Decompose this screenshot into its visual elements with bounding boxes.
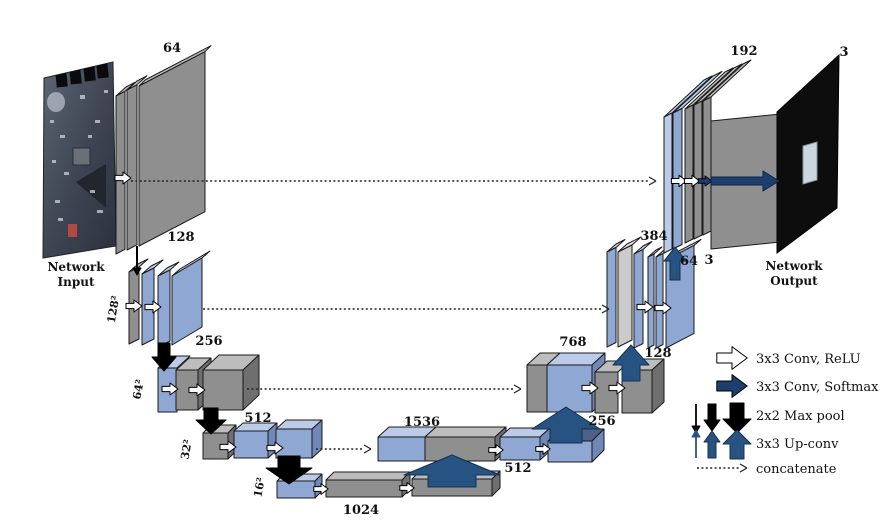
dec384-4-front (656, 254, 663, 349)
label-1536: 1536 (404, 415, 440, 430)
dec768-2-front (595, 372, 618, 413)
label-384: 384 (640, 229, 667, 244)
legend-icons (692, 347, 751, 472)
legend-concatenate: concatenate (756, 462, 837, 477)
concat-head-a1 (649, 177, 656, 181)
legend-conv-relu: 3x3 Conv, ReLU (756, 352, 861, 367)
legend-maxpool: 2x2 Max pool (756, 409, 845, 424)
dec192-4-front (703, 97, 711, 235)
enc128-face-front (172, 258, 202, 345)
legend-upconv-med-icon (704, 431, 720, 458)
dec512-box-front (500, 437, 540, 460)
label-out-3: 3 (839, 45, 848, 60)
label-enc-256: 256 (195, 334, 222, 349)
legend-maxpool-med-icon (704, 404, 720, 431)
legend-conv-softmax-arrow-icon (717, 375, 747, 398)
legend-upconv-big-icon (723, 430, 751, 459)
label-up-256: 256 (588, 414, 615, 429)
bott-1024a-front (326, 480, 402, 497)
dec384-0-front (607, 248, 616, 348)
dec384-2-front (634, 250, 643, 349)
bott-1024a-top (326, 472, 410, 480)
legend: 3x3 Conv, ReLU 3x3 Conv, Softmax 2x2 Max… (756, 352, 879, 477)
enc64-2-front (127, 85, 137, 250)
enc512-2-front (276, 429, 312, 458)
input-caption-line2: Input (58, 275, 95, 289)
label-192: 192 (730, 44, 757, 59)
legend-concat-head-a (740, 464, 747, 468)
network-output-image (777, 55, 839, 253)
label-size-128sq: 128² (105, 294, 123, 324)
concat-head-b4 (364, 449, 371, 453)
unet-architecture-diagram: 64 128 256 512 1024 1536 512 256 768 128… (0, 0, 888, 529)
dec768-0-front (527, 365, 547, 412)
network-input-image (43, 62, 116, 258)
dec384-3-front (648, 254, 654, 348)
conv-relu-arrow-2 (126, 300, 142, 312)
label-enc-128: 128 (167, 230, 194, 245)
input-caption-line1: Network (47, 260, 105, 274)
enc512-1-front (234, 431, 268, 458)
enc64-face-front (139, 52, 205, 246)
label-size-32sq: 32² (178, 438, 194, 460)
legend-concat-head-b (740, 468, 747, 472)
legend-conv-softmax: 3x3 Conv, Softmax (756, 380, 879, 395)
label-1024: 1024 (343, 503, 379, 518)
label-768: 768 (559, 335, 586, 350)
feature-map-layers (116, 46, 783, 498)
concat-head-b3 (514, 389, 521, 393)
dec192-3-front (694, 101, 702, 239)
label-up-128: 128 (644, 346, 671, 361)
label-dec-64: 64 (680, 254, 698, 269)
label-size-16sq: 16² (251, 476, 267, 498)
dec1536-blue-front (378, 437, 425, 461)
legend-conv-relu-arrow-icon (717, 347, 747, 370)
legend-maxpool-big-icon (723, 403, 751, 433)
bott-0-front (277, 481, 315, 498)
label-enc-512: 512 (244, 411, 271, 426)
concat-head-b1 (649, 181, 656, 185)
output-caption-line1: Network (765, 259, 823, 273)
open-box-front (548, 441, 592, 462)
dec384-1-front (618, 245, 632, 347)
dec1536-gray-front (425, 437, 495, 461)
label-dec-3: 3 (704, 253, 713, 268)
label-size-64sq: 64² (130, 378, 146, 400)
label-enc-64: 64 (163, 41, 181, 56)
output-caption-line2: Output (770, 274, 818, 288)
legend-upconv-line-head-icon (692, 430, 700, 437)
concat-head-a4 (364, 445, 371, 449)
diagram-canvas: 64 128 256 512 1024 1536 512 256 768 128… (0, 0, 888, 529)
label-dec-512: 512 (504, 461, 531, 476)
enc256-2-front (203, 370, 243, 410)
concat-head-a3 (514, 385, 521, 389)
legend-upconv: 3x3 Up-conv (756, 437, 839, 452)
dec192-2-front (685, 105, 693, 243)
segmentation-region (803, 142, 817, 184)
